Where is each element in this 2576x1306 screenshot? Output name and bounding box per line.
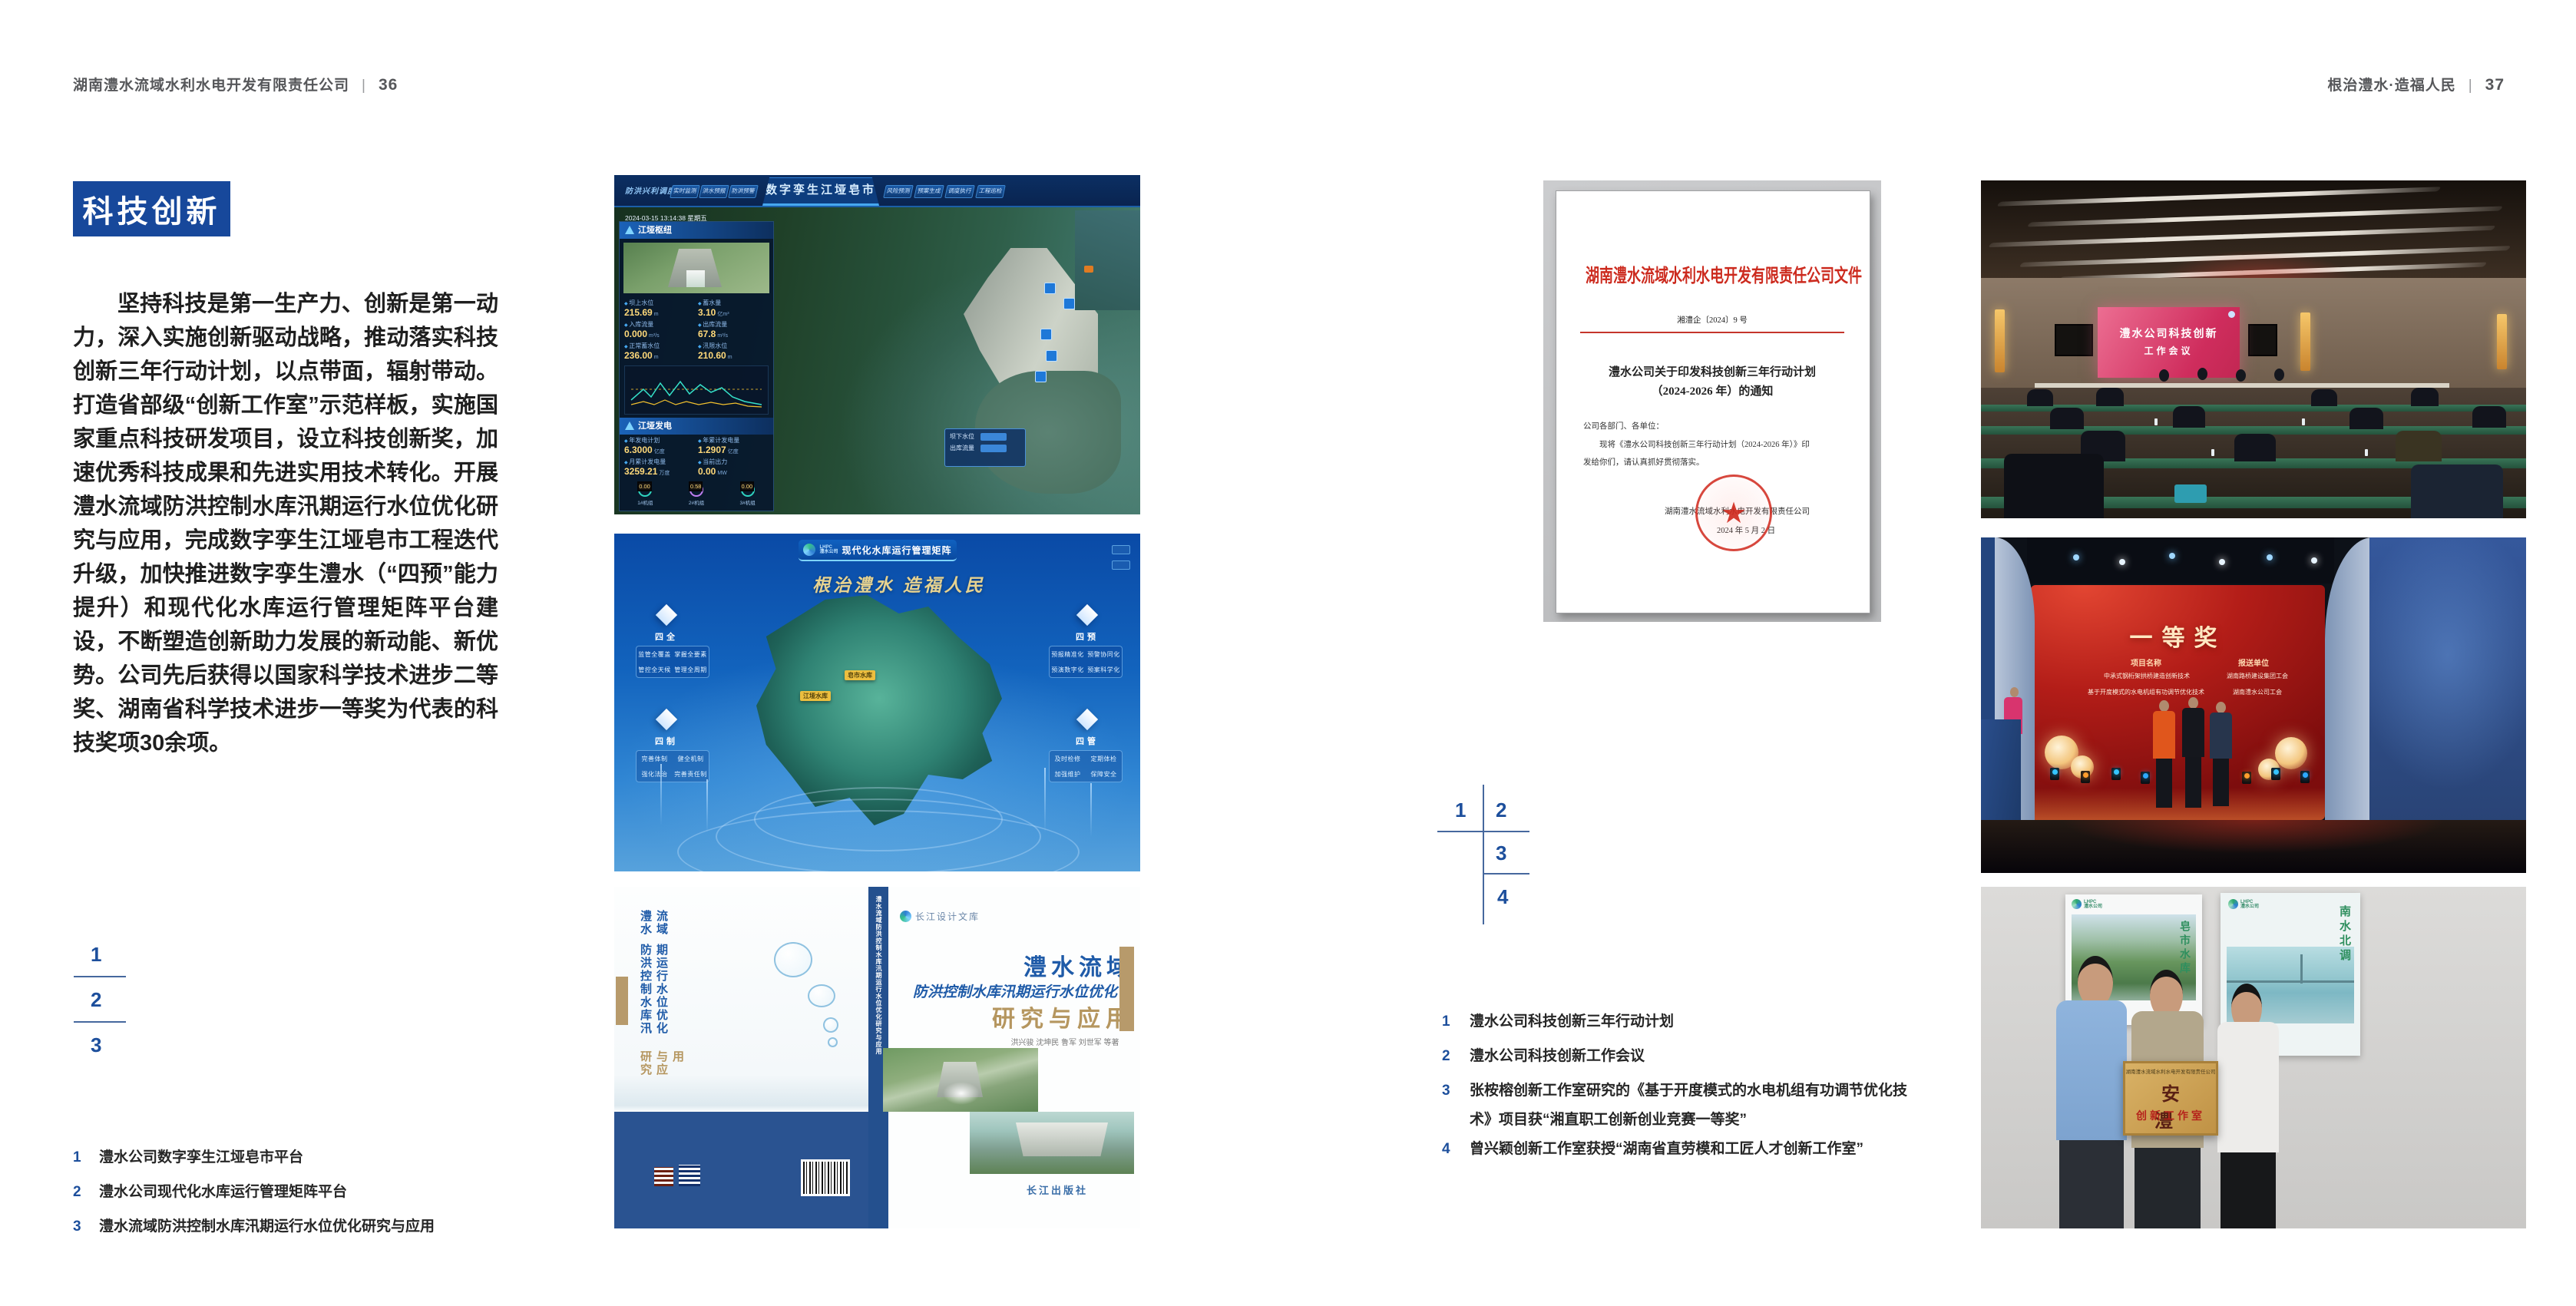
panel-items: 及时检修定期体检 加强维护保障安全 <box>1049 750 1123 782</box>
lhpc-logo-icon <box>803 544 815 556</box>
stage-light <box>2267 554 2273 560</box>
document-sheet <box>1556 190 1870 613</box>
map-label-jiangya: 江垭水库 <box>800 691 831 701</box>
tab-realtime-monitor: 实时监测 <box>670 185 700 198</box>
plaque-subtitle: 创新工作室 <box>2125 1108 2216 1123</box>
caption-3: 3澧水流域防洪控制水库汛期运行水位优化研究与应用 <box>73 1215 435 1235</box>
meeting-projector-screen: 澧水公司科技创新 工作会议 <box>2098 307 2240 378</box>
index-divider <box>1483 785 1484 924</box>
wall-lamp <box>2300 312 2310 371</box>
lhpc-logo: LHPC澧水公司 <box>2072 899 2102 909</box>
spotlight-fixture <box>2300 771 2310 783</box>
metric: 汛限水位210.60m <box>698 342 769 361</box>
metric: 蓄水量3.10亿m³ <box>698 299 769 318</box>
publisher-logo-icon <box>900 911 911 922</box>
tooltip-value-chip <box>980 433 1007 441</box>
plaque-title: 安 澧 <box>2125 1079 2216 1132</box>
stage-light <box>2219 559 2225 565</box>
panelist-silhouette <box>2236 369 2246 382</box>
dam-inset-photo <box>623 243 769 293</box>
left-page-header: 湖南澧水流域水利水电开发有限责任公司|36 <box>73 74 398 94</box>
caption-number: 1 <box>73 1149 99 1166</box>
panel-items: 预报精准化预警协同化 预演数字化预案科学化 <box>1049 646 1123 678</box>
audience-silhouette <box>2396 431 2442 461</box>
document-body-line1: 现将《澧水公司科技创新三年行动计划（2024-2026 年）》印 <box>1599 438 1810 450</box>
photo-studio-plaque: LHPC澧水公司 皂市水库 LHPC澧水公司 南水北调 湖南澧 <box>1981 887 2526 1228</box>
left-page-number: 36 <box>379 76 398 94</box>
water-bubble <box>823 1017 838 1033</box>
panel-items: 监管全覆盖掌握全要素 管控全天候管理全周期 <box>636 646 709 678</box>
caption-number: 2 <box>73 1184 99 1201</box>
turbine-unit: 0.003#机组 <box>740 481 756 506</box>
river-water <box>1075 210 1140 310</box>
city-lights-band <box>2031 788 2325 820</box>
poster-right-calligraphy: 南水北调 <box>2336 905 2353 964</box>
index-divider <box>74 1021 126 1023</box>
stage-light <box>2311 557 2317 564</box>
turbine-unit: 0.001#机组 <box>637 481 653 506</box>
audience-silhouette <box>2234 434 2276 461</box>
figure-index-3: 3 <box>91 1033 101 1057</box>
audience-silhouette <box>2173 406 2205 428</box>
panelist-silhouette <box>2274 369 2284 381</box>
star-icon: ★ <box>1721 496 1747 531</box>
spotlight-fixture <box>2271 768 2280 780</box>
spotlight-fixture <box>2111 768 2121 780</box>
figure-official-document: 湖南澧水流域水利水电开发有限责任公司文件 湘澧企〔2024〕9 号 澧水公司关于… <box>1543 180 1881 622</box>
figure-index-4: 4 <box>1497 885 1508 909</box>
cover-photo-dam-face <box>970 1112 1134 1174</box>
screen-title-line1: 澧水公司科技创新 <box>2098 326 2240 341</box>
document-red-rule <box>1580 332 1844 333</box>
index-divider <box>1437 831 1529 832</box>
audience-silhouette <box>2411 388 2439 406</box>
hub-metrics-grid: 坝上水位215.69m 蓄水量3.10亿m³ 入库流量0.000m³/s 出库流… <box>620 297 773 362</box>
audience-silhouette <box>2050 408 2084 429</box>
map-marker-icon <box>1035 371 1047 382</box>
tab-flood-forecast: 洪水预报 <box>699 185 729 198</box>
poster-left-calligraphy: 皂市水库 <box>2176 921 2191 976</box>
document-red-title: 湖南澧水流域水利水电开发有限责任公司文件 <box>1586 260 1839 287</box>
qr-code <box>654 1167 673 1186</box>
audience-silhouette <box>2311 389 2337 406</box>
wall-lamp <box>2497 314 2507 369</box>
tab-dispatch-execute: 调度执行 <box>944 185 975 198</box>
wall-lamp <box>1995 309 2005 372</box>
power-metrics-grid: 年发电计划6.3000亿度 年累计发电量1.2907亿度 月累计发电量3259.… <box>620 435 773 478</box>
panel-name: 四预 <box>1064 630 1110 643</box>
water-bubble <box>828 1037 838 1047</box>
crane-icon <box>1084 266 1093 273</box>
metric: 当前出力0.00MW <box>698 458 769 477</box>
audience-silhouette <box>2349 408 2383 429</box>
water-level-chart <box>624 365 769 415</box>
map-marker-icon <box>1046 350 1057 362</box>
caption-4: 4曾兴颖创新工作室获授“湖南省直劳模和工匠人才创新工作室” <box>1442 1135 1919 1164</box>
document-body-line2: 发给你们，请认真抓好贯彻落实。 <box>1583 456 1705 468</box>
caption-2: 2澧水公司科技创新工作会议 <box>1442 1042 1919 1071</box>
book-back-cover: 澧水流域 防洪控制水库汛期运行水位优化 研究与应用 <box>614 887 868 1228</box>
notice-title-line1: 澧水公司关于印发科技创新三年行动计划 <box>1543 363 1881 379</box>
metric: 出库流量67.8m³/s <box>698 320 769 339</box>
toolbar-chip <box>1112 560 1130 570</box>
matrix-slogan: 根治澧水 造福人民 <box>812 570 997 597</box>
metric: 年累计发电量1.2907亿度 <box>698 436 769 455</box>
light-pillar <box>660 764 662 825</box>
tissue-box <box>2174 484 2207 503</box>
light-pillar <box>1044 768 1046 833</box>
figure-digital-twin-platform: 防洪兴利调度 实时监测 洪水预报 防洪预警 数字孪生江垭皂市 风险预测 预案生成… <box>614 175 1140 514</box>
station-data-panel: 江垭枢纽 坝上水位215.69m 蓄水量3.10亿m³ 入库流量0.000m³/… <box>619 221 774 511</box>
panel-name: 四全 <box>643 630 689 643</box>
map-marker-icon <box>1044 283 1056 294</box>
audience-silhouette <box>2096 388 2124 406</box>
figure-index-1: 1 <box>1455 798 1466 822</box>
cover-photo-gorge-dam <box>883 1048 1038 1112</box>
award-org-row: 湖南路桥建设集团工会 <box>2215 672 2300 680</box>
header-separator: | <box>362 78 366 94</box>
stage-floor <box>1981 820 2526 873</box>
audience-silhouette-front <box>2004 454 2104 518</box>
innovation-studio-plaque: 湖南澧水流域水利水电开发有限责任公司 安 澧 创新工作室 <box>2123 1061 2218 1136</box>
right-page-number: 37 <box>2485 76 2505 94</box>
caption-1: 1澧水公司科技创新三年行动计划 <box>1442 1007 1919 1037</box>
tooltip-value-chip <box>980 445 1007 452</box>
panel-icon <box>656 604 677 626</box>
isbn-barcode <box>801 1159 850 1196</box>
water-bubble <box>808 984 835 1007</box>
water-bottle <box>2302 418 2305 425</box>
qr-code <box>679 1165 700 1186</box>
tab-flood-warning: 防洪预警 <box>728 185 759 198</box>
figure-research-book: 澧水流域 防洪控制水库汛期运行水位优化 研究与应用 澧水流域防洪控制水库汛期运行… <box>614 887 1140 1228</box>
caption-text: 澧水公司现代化水库运行管理矩阵平台 <box>99 1184 347 1200</box>
water-bubble <box>774 942 812 977</box>
plaque-company-line: 湖南澧水流域水利水电开发有限责任公司 <box>2125 1067 2216 1075</box>
panelist-silhouette <box>2197 368 2207 380</box>
screen-logo-icon <box>2228 311 2235 318</box>
system-label: 防洪兴利调度 <box>625 184 676 196</box>
panel-items: 完善体制健全机制 强化法治完善责任制 <box>636 750 709 782</box>
photo-innovation-meeting: 澧水公司科技创新 工作会议 <box>1981 180 2526 518</box>
series-badge: 长江设计文库 <box>900 910 980 923</box>
water-bottle <box>2365 449 2368 456</box>
magazine-spread: 湖南澧水流域水利水电开发有限责任公司|36 根治澧水·造福人民|37 科技创新 … <box>0 0 2576 1306</box>
figure-index-2: 2 <box>91 988 101 1012</box>
metric: 年发电计划6.3000亿度 <box>624 436 695 455</box>
water-bottle <box>2154 418 2158 425</box>
metric: 坝上水位215.69m <box>624 299 695 318</box>
body-paragraph: 坚持科技是第一生产力、创新是第一动力，深入实施创新驱动战略，推动落实科技创新三年… <box>73 287 498 760</box>
document-number: 湘澧企〔2024〕9 号 <box>1543 314 1881 326</box>
map-label-zaoshi: 皂市水库 <box>845 670 875 680</box>
index-divider <box>1483 873 1529 875</box>
tab-risk-forecast: 风险预测 <box>883 185 914 198</box>
spotlight-fixture <box>2141 772 2150 784</box>
tan-accent-bar <box>1119 947 1134 1031</box>
slogan-text: 根治澧水·造福人民 <box>2327 78 2455 94</box>
company-name: 湖南澧水流域水利水电开发有限责任公司 <box>73 78 349 94</box>
spotlight-fixture <box>2081 771 2090 783</box>
turbine-unit: 0.582#机组 <box>689 481 704 506</box>
lantern-sphere <box>2275 737 2307 769</box>
book-authors: 洪兴骏 沈坤民 鲁军 刘世军 等著 <box>988 1036 1140 1047</box>
panel-title-hub: 江垭枢纽 <box>620 222 773 239</box>
stage-light <box>2073 554 2079 560</box>
bridge-deck <box>2227 980 2354 983</box>
publisher-name: 长江出版社 <box>973 1182 1140 1197</box>
index-divider <box>74 976 126 977</box>
notice-title-line2: （2024-2026 年）的通知 <box>1543 382 1881 398</box>
caption-3: 3张桉榕创新工作室研究的《基于开度模式的水电机组有功调节优化技术》项目获“湘直职… <box>1442 1076 1919 1135</box>
award-title: 一等奖 <box>2031 619 2325 653</box>
book-front-cover: 长江设计文库 澧水流域 防洪控制水库汛期运行水位优化 研究与应用 洪兴骏 沈坤民… <box>888 887 1140 1228</box>
spillway-water <box>686 270 705 287</box>
toolbar-chip <box>1112 545 1130 554</box>
section-badge: 科技创新 <box>73 181 230 236</box>
tab-plan-generate: 预案生成 <box>914 185 944 198</box>
wall-tv-screen <box>2248 324 2277 356</box>
light-pillar <box>706 779 708 833</box>
water-bottle <box>2211 449 2214 456</box>
spotlight-fixture <box>2242 772 2251 784</box>
tab-project-inspect: 工程巡检 <box>975 185 1006 198</box>
caption-text: 澧水流域防洪控制水库汛期运行水位优化研究与应用 <box>99 1218 435 1235</box>
back-cover-vertical-title: 澧水流域 防洪控制水库汛期运行水位优化 研究与应用 <box>637 910 686 1086</box>
figure-index-2: 2 <box>1496 798 1506 822</box>
panel-icon <box>656 709 677 730</box>
caption-1: 1澧水公司数字孪生江垭皂市平台 <box>73 1146 303 1166</box>
award-col2-header: 报送单位 <box>2211 656 2296 668</box>
matrix-title: 现代化水库运行管理矩阵 <box>842 544 952 557</box>
map-marker-icon <box>1040 329 1052 340</box>
metric: 入库流量0.000m³/s <box>624 320 695 339</box>
panel-icon <box>1076 604 1098 626</box>
screen-title-line2: 工作会议 <box>2098 344 2240 357</box>
panel-name: 四制 <box>643 735 689 747</box>
document-salutation: 公司各部门、各单位： <box>1583 420 1664 431</box>
metric: 正常蓄水位236.00m <box>624 342 695 361</box>
panelist-silhouette <box>2159 369 2169 382</box>
header-separator: | <box>2469 78 2473 94</box>
spine-title: 澧水流域防洪控制水库汛期运行水位优化研究与应用 <box>874 896 883 1126</box>
right-page-header: 根治澧水·造福人民|37 <box>2327 74 2505 94</box>
audience-silhouette <box>2027 389 2053 406</box>
panel-icon <box>1076 709 1098 730</box>
panel-title-power: 江垭发电 <box>620 418 773 435</box>
audience-silhouette-front <box>2411 465 2503 518</box>
bridge-pylon <box>2300 954 2303 984</box>
caption-2: 2澧水公司现代化水库运行管理矩阵平台 <box>73 1180 347 1201</box>
book-title-main: 澧水流域 <box>1004 948 1134 982</box>
caption-text: 澧水公司数字孪生江垭皂市平台 <box>99 1149 303 1165</box>
figure-matrix-platform: LHPC澧水公司 现代化水库运行管理矩阵 根治澧水 造福人民 四全 监管全覆盖掌… <box>614 534 1140 871</box>
figure-index-1: 1 <box>91 943 101 967</box>
lhpc-logo: LHPC澧水公司 <box>2228 899 2259 909</box>
award-project-row: 基于开度模式的水电机组有功调节优化技术 <box>2050 688 2242 696</box>
stage-truss <box>2027 537 2334 584</box>
book-title-sub: 防洪控制水库汛期运行水位优化 <box>896 980 1134 1001</box>
photo-award-ceremony: 一等奖 项目名称 报送单位 中承式钢桁架拱桥建造创新技术 基于开度模式的水电机组… <box>1981 537 2526 873</box>
spotlight-fixture <box>2050 768 2059 780</box>
stage-light <box>2119 559 2125 565</box>
light-pillar <box>1090 783 1092 837</box>
tooltip-label: 出库流量 <box>950 444 980 452</box>
metric: 月累计发电量3259.21万度 <box>624 458 695 477</box>
matrix-header: LHPC澧水公司 现代化水库运行管理矩阵 <box>799 540 957 561</box>
figure-index-3: 3 <box>1496 841 1506 865</box>
map-marker-icon <box>1063 298 1075 309</box>
award-org-row: 湖南澧水公司工会 <box>2215 688 2300 696</box>
panel-name: 四管 <box>1064 735 1110 747</box>
dashboard-title: 数字孪生江垭皂市 <box>762 177 879 206</box>
award-col1-header: 项目名称 <box>2108 656 2184 668</box>
award-led-screen: 一等奖 项目名称 报送单位 中承式钢桁架拱桥建造创新技术 基于开度模式的水电机组… <box>2031 585 2325 820</box>
tan-accent-bar <box>616 977 628 1025</box>
map-tooltip: 坝下水位 出库流量 <box>944 428 1026 467</box>
book-title-tail: 研究与应用 <box>980 1000 1134 1033</box>
turbine-status-row: 0.001#机组 0.582#机组 0.003#机组 <box>620 481 773 506</box>
award-project-row: 中承式钢桁架拱桥建造创新技术 <box>2058 672 2235 680</box>
logo-caption: LHPC澧水公司 <box>819 545 838 555</box>
caption-number: 3 <box>73 1218 99 1235</box>
official-seal: ★ <box>1695 474 1772 551</box>
stage-light <box>2169 553 2175 559</box>
wall-tv-screen <box>2055 324 2093 356</box>
audience-silhouette <box>2472 406 2506 428</box>
tooltip-label: 坝下水位 <box>950 432 980 441</box>
